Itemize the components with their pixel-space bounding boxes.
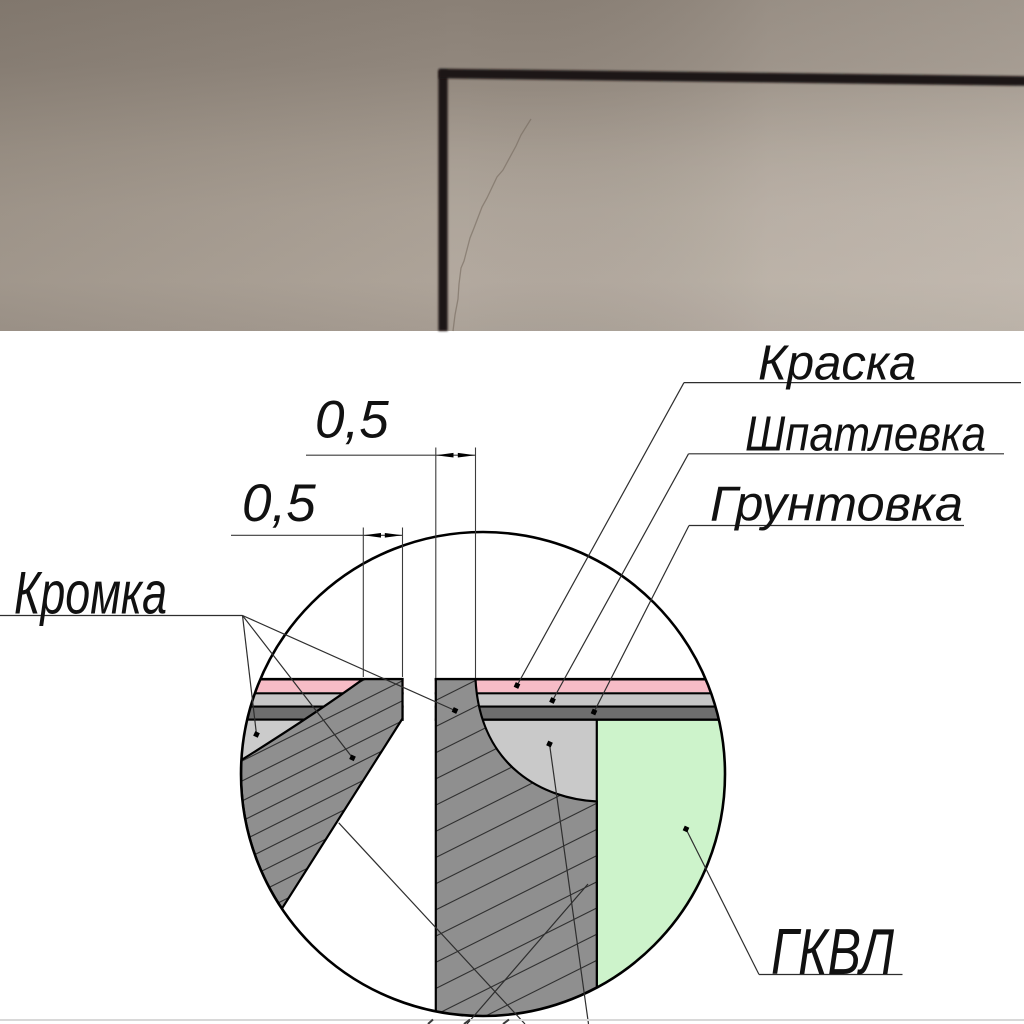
svg-text:0,5: 0,5: [242, 474, 316, 533]
svg-text:ГКВЛ: ГКВЛ: [771, 915, 894, 988]
svg-text:Шпатлевка: Шпатлевка: [745, 408, 986, 462]
svg-text:Краска: Краска: [758, 337, 916, 391]
svg-text:0,5: 0,5: [315, 391, 389, 450]
svg-text:Грунтовка: Грунтовка: [710, 478, 963, 532]
svg-text:Кромка: Кромка: [14, 560, 167, 627]
